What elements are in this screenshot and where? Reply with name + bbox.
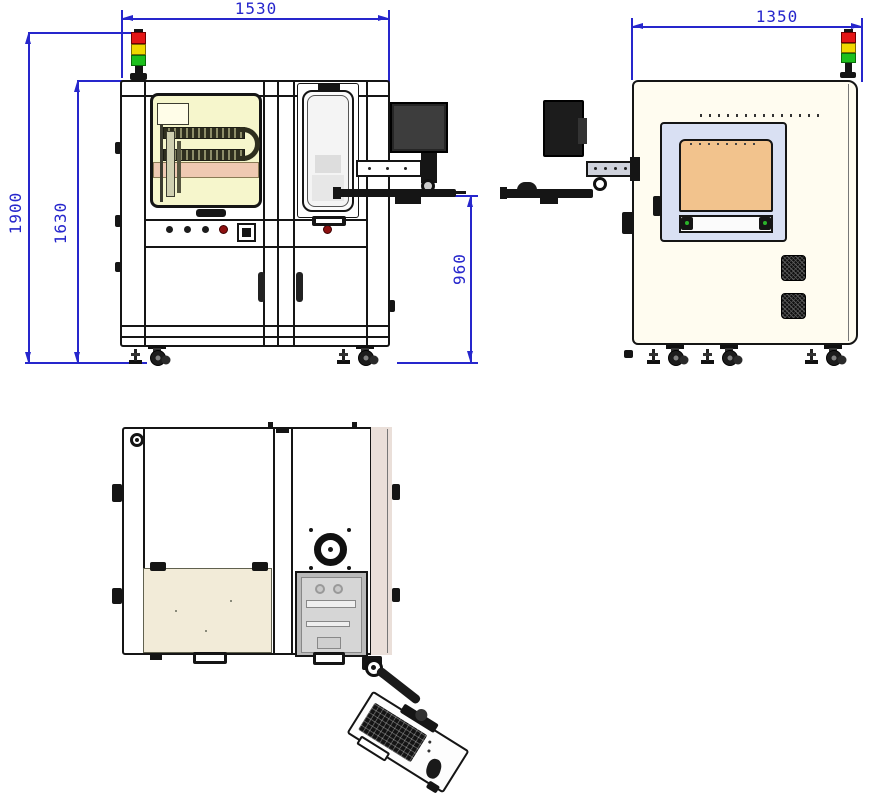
edge-tab bbox=[268, 422, 273, 428]
panel-hinge bbox=[252, 562, 268, 571]
hatch-latch bbox=[317, 637, 341, 649]
pivot-dot bbox=[371, 665, 376, 670]
fan-screw bbox=[309, 566, 313, 570]
fan-screw bbox=[347, 566, 351, 570]
edge-tab bbox=[112, 484, 122, 502]
tower-center-dot bbox=[135, 438, 139, 442]
top-divider-line bbox=[273, 429, 275, 653]
top-handle bbox=[313, 652, 345, 665]
three-view-technical-drawing: 1530 1350 1900 1630 960 bbox=[0, 0, 885, 801]
speck bbox=[205, 630, 207, 632]
speck bbox=[230, 600, 232, 602]
hatch-port bbox=[333, 584, 343, 594]
top-right-bar-line bbox=[387, 429, 388, 653]
fan-screw bbox=[309, 528, 313, 532]
panel-hinge bbox=[150, 562, 166, 571]
edge-tab bbox=[392, 588, 400, 602]
top-view bbox=[0, 0, 885, 801]
top-right-bar bbox=[370, 427, 392, 655]
hatch-slot bbox=[306, 621, 350, 627]
hatch-port bbox=[315, 584, 325, 594]
top-beige-panel bbox=[143, 568, 272, 653]
hatch-slot bbox=[306, 600, 356, 608]
edge-tab bbox=[392, 484, 400, 500]
top-divider-line bbox=[291, 429, 293, 653]
top-handle bbox=[193, 652, 227, 664]
edge-tab bbox=[112, 588, 122, 604]
fan-hub-dot bbox=[328, 547, 333, 552]
fan-screw bbox=[347, 528, 351, 532]
bottom-tab bbox=[150, 654, 162, 660]
speck bbox=[175, 610, 177, 612]
edge-tab bbox=[352, 422, 357, 428]
keyboard-tray-top bbox=[346, 691, 469, 794]
divider-cap bbox=[276, 427, 289, 433]
